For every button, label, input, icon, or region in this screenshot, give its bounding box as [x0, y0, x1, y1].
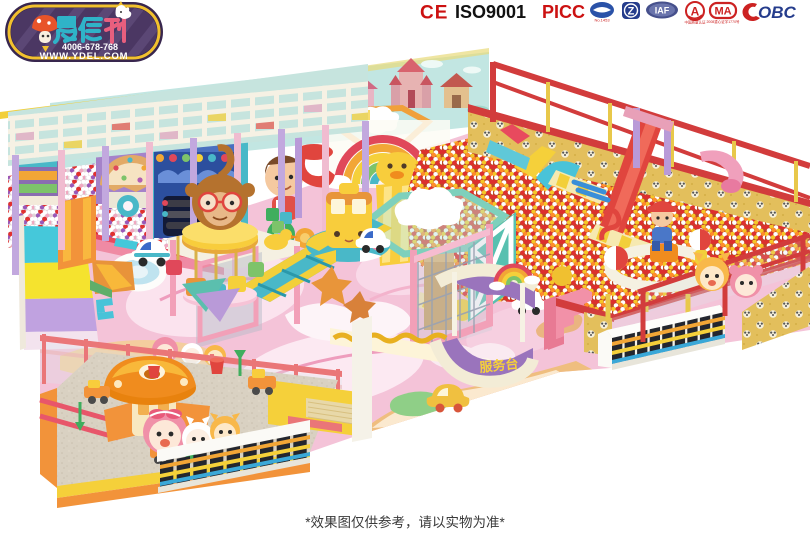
- svg-text:Z: Z: [628, 6, 635, 18]
- svg-text:IAF: IAF: [655, 6, 670, 16]
- svg-text:*效果图仅供参考，请以实物为准*: *效果图仅供参考，请以实物为准*: [305, 514, 505, 530]
- svg-text:No.1453: No.1453: [594, 18, 610, 23]
- svg-text:MA: MA: [714, 6, 731, 18]
- svg-text:OBC: OBC: [758, 3, 797, 22]
- svg-text:ISO9001: ISO9001: [455, 2, 526, 22]
- svg-text:A: A: [691, 5, 700, 19]
- svg-text:PICC: PICC: [542, 2, 585, 22]
- svg-text:2008重心证字1770号: 2008重心证字1770号: [706, 19, 740, 24]
- svg-text:WWW.YDEL.COM: WWW.YDEL.COM: [40, 51, 129, 62]
- svg-text:中国质量认证: 中国质量认证: [685, 20, 706, 25]
- svg-text:CE: CE: [420, 3, 448, 24]
